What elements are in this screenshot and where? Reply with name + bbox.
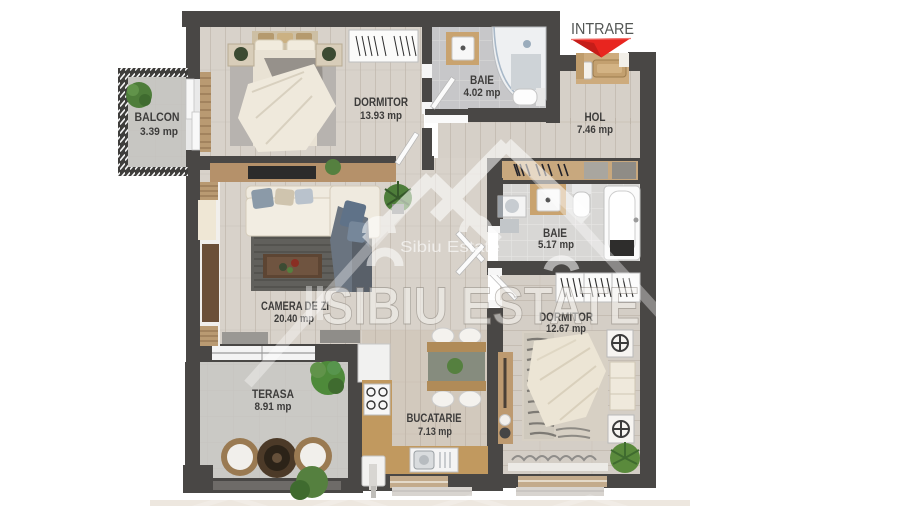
svg-text:DORMITOR: DORMITOR [354,95,408,109]
svg-text:8.91 mp: 8.91 mp [255,401,292,413]
svg-text:3.39 mp: 3.39 mp [140,126,178,138]
svg-text:INTRARE: INTRARE [571,21,634,38]
svg-text:BUCATARIE: BUCATARIE [407,411,462,425]
svg-text:HOL: HOL [585,110,606,124]
svg-text:7.46 mp: 7.46 mp [577,124,613,136]
svg-text:TERASA: TERASA [252,387,294,401]
svg-text:BALCON: BALCON [135,110,180,124]
svg-text:13.93 mp: 13.93 mp [360,110,402,122]
svg-text:BAIE: BAIE [543,226,567,240]
svg-text:BAIE: BAIE [470,73,494,87]
svg-text:Sibiu Estate: Sibiu Estate [400,239,500,256]
svg-text:5.17 mp: 5.17 mp [538,239,574,251]
svg-text:SIBIU ESTATE: SIBIU ESTATE [322,277,640,336]
svg-text:4.02 mp: 4.02 mp [464,87,501,99]
svg-text:7.13 mp: 7.13 mp [418,426,452,438]
